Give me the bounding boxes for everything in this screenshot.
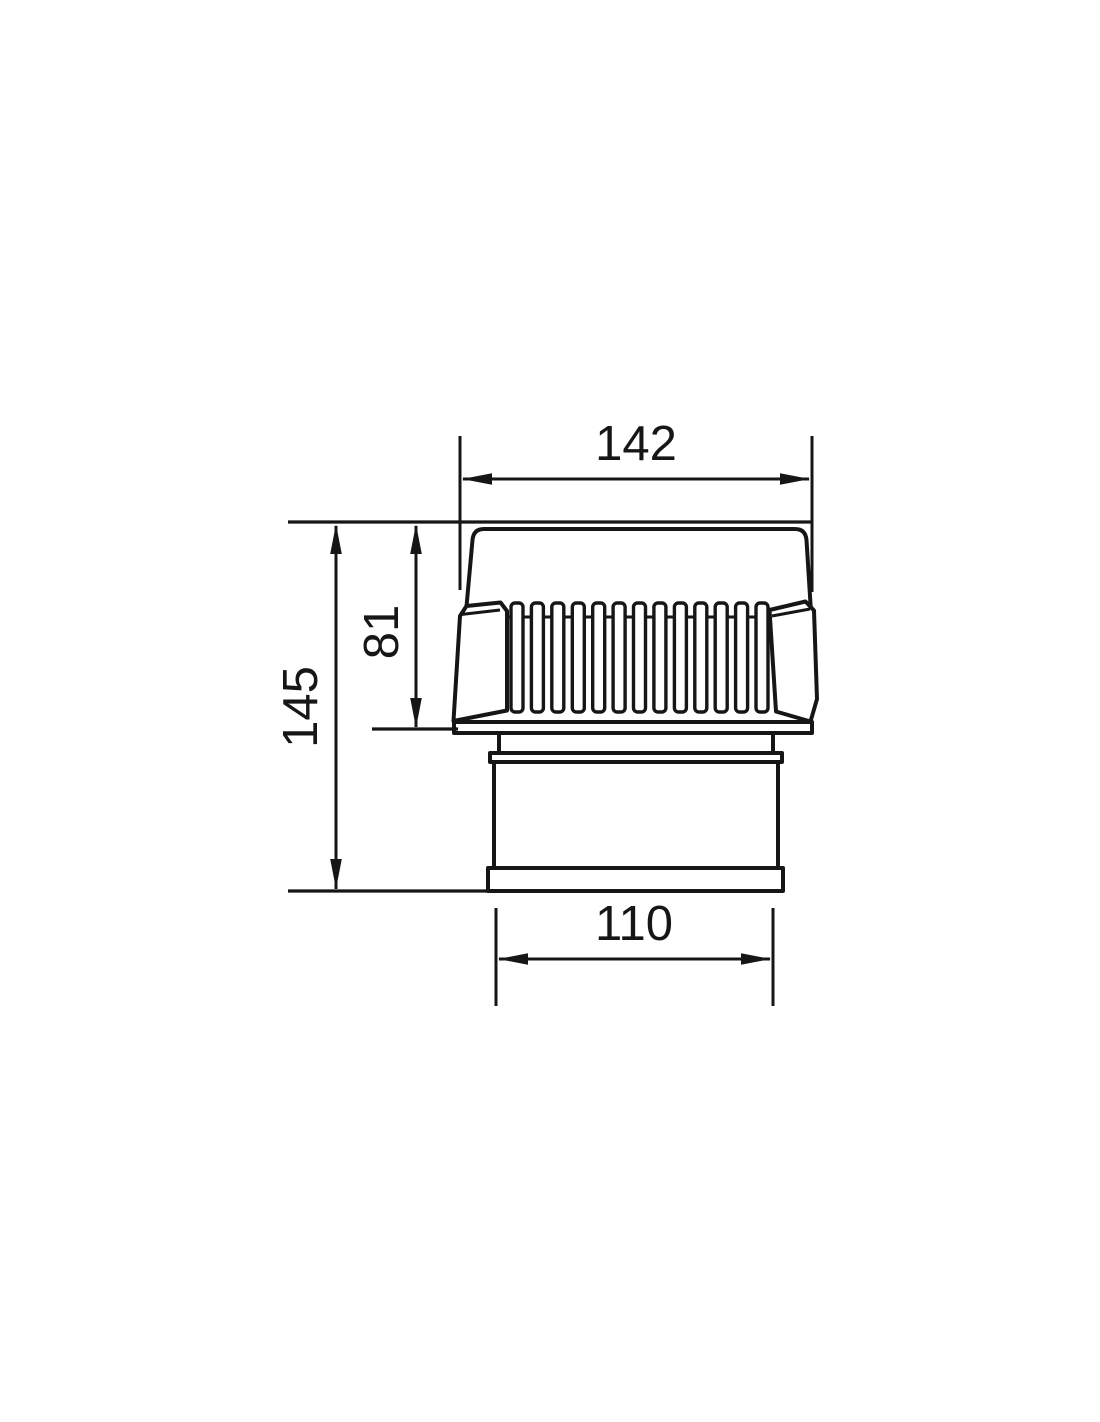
technical-drawing: 142 145 81 110	[0, 0, 1100, 1422]
bottom-flange	[488, 868, 783, 891]
fin	[654, 603, 666, 712]
dim-ribbed-height: 81	[355, 524, 422, 728]
fin	[736, 603, 748, 712]
dim-overall-height: 145	[274, 524, 342, 889]
dim-142-label: 142	[595, 417, 677, 471]
dim-145-arrow-bottom-icon	[330, 859, 342, 889]
fin	[593, 603, 605, 712]
dim-81-label: 81	[355, 605, 409, 660]
dim-145-arrow-top-icon	[330, 524, 342, 554]
dim-81-arrow-bottom-icon	[410, 698, 422, 728]
fin	[695, 603, 707, 712]
dim-142-arrow-right-icon	[780, 473, 810, 485]
part-outline	[454, 529, 818, 891]
fin	[552, 603, 564, 712]
fin	[715, 603, 727, 712]
dim-145-label: 145	[274, 666, 328, 748]
neck-step	[499, 733, 773, 753]
dim-81-arrow-top-icon	[410, 524, 422, 554]
cap-band	[466, 529, 811, 612]
fin	[511, 603, 523, 712]
right-shoulder	[770, 602, 818, 722]
fin	[613, 603, 625, 712]
fin	[634, 603, 646, 712]
dim-110-arrow-right-icon	[741, 953, 771, 965]
part-fins	[511, 603, 768, 712]
fin	[572, 603, 584, 712]
fin	[756, 603, 768, 712]
drawing-canvas: 142 145 81 110	[0, 0, 1100, 1422]
fin	[531, 603, 543, 712]
dim-spigot-width: 110	[496, 897, 773, 1006]
dim-110-label: 110	[595, 897, 673, 951]
left-shoulder	[454, 603, 508, 722]
dim-142-arrow-left-icon	[462, 473, 492, 485]
dim-110-arrow-left-icon	[498, 953, 528, 965]
fin	[674, 603, 686, 712]
spigot-barrel	[494, 762, 778, 868]
